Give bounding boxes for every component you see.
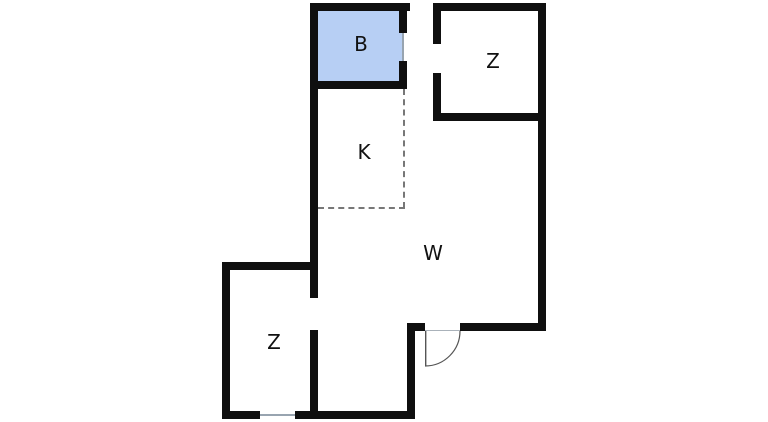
room-label-kitchen: K: [357, 140, 370, 164]
room-label-bathroom: B: [354, 32, 368, 56]
room-label-living-area: W: [423, 241, 443, 265]
door-swing-icon: [0, 0, 768, 422]
room-label-top-right: Z: [486, 49, 500, 73]
floor-plan: B Z K W Z: [0, 0, 768, 422]
room-label-bottom-left: Z: [267, 330, 281, 354]
